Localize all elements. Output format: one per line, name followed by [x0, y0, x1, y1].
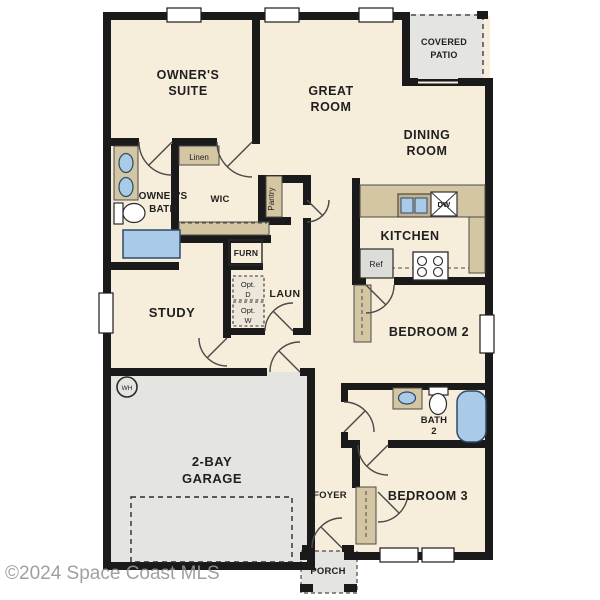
bedroom2-label: BEDROOM 2 — [389, 325, 469, 339]
wall — [293, 328, 309, 335]
bathtub2 — [457, 391, 486, 442]
dining-room-label-1: DINING — [404, 128, 451, 142]
wall — [458, 78, 485, 86]
floor-plan-image: DW Ref — [0, 0, 600, 600]
wall — [477, 11, 488, 19]
wall — [103, 368, 267, 376]
porch-post — [300, 584, 313, 592]
window — [422, 548, 454, 562]
refrigerator-label: Ref — [369, 259, 383, 269]
dishwasher: DW — [431, 192, 457, 216]
dishwasher-label: DW — [438, 200, 452, 209]
kitchen-sink-basin — [415, 198, 427, 213]
slider-panel — [416, 79, 458, 82]
bathtub — [123, 230, 180, 258]
study-label: STUDY — [149, 305, 196, 320]
owners-bath-label-1: OWNER'S — [139, 191, 188, 202]
porch-label: PORCH — [310, 566, 345, 577]
bath2-sink — [399, 392, 416, 404]
wall — [348, 552, 493, 560]
wall — [402, 78, 418, 86]
laundry-label: LAUN — [269, 288, 300, 300]
wic-shelf — [179, 222, 269, 235]
toilet-bowl — [123, 204, 145, 223]
wall — [103, 138, 139, 146]
covered-patio-label-2: PATIO — [430, 50, 457, 60]
bath2-label-1: BATH — [421, 415, 447, 426]
porch-post — [300, 552, 313, 560]
furnace-label: FURN — [234, 248, 258, 258]
porch-post — [344, 584, 357, 592]
wall — [307, 368, 315, 562]
stove-box — [413, 252, 448, 280]
wall — [103, 262, 179, 270]
wall — [223, 328, 265, 335]
toilet-bowl — [430, 394, 447, 415]
burner — [434, 257, 443, 266]
wic-label: WIC — [210, 194, 229, 205]
wall — [402, 12, 410, 86]
kitchen-label: KITCHEN — [380, 229, 439, 243]
bath-sink — [119, 178, 133, 197]
refrigerator: Ref — [360, 249, 393, 278]
wall — [252, 12, 260, 144]
window — [99, 293, 113, 333]
covered-patio-label-1: COVERED — [421, 37, 467, 47]
wall — [103, 12, 111, 570]
window — [167, 8, 201, 22]
pantry-label: Pantry — [267, 187, 276, 210]
foyer-label: FOYER — [313, 490, 347, 501]
window — [380, 548, 418, 562]
wall — [303, 218, 311, 335]
mls-watermark: ©2024 Space Coast MLS — [5, 563, 220, 584]
slider-panel — [416, 84, 458, 87]
wall — [342, 545, 354, 552]
wall — [341, 383, 348, 402]
bath2-label-2: 2 — [431, 426, 436, 437]
window — [359, 8, 393, 22]
bath-sink — [119, 154, 133, 173]
toilet-tank — [114, 203, 123, 224]
burner — [418, 257, 427, 266]
opt-washer-label-2: W — [244, 316, 252, 325]
wall — [352, 440, 360, 488]
burner — [418, 268, 427, 277]
opt-dryer-label-2: D — [245, 290, 251, 299]
bedroom3-label: BEDROOM 3 — [388, 489, 468, 503]
window — [265, 8, 299, 22]
owners-suite-label-1: OWNER'S — [157, 68, 220, 82]
owners-suite-label-2: SUITE — [168, 84, 207, 98]
great-room-label-2: ROOM — [311, 100, 352, 114]
window — [480, 315, 494, 353]
floor-plan-svg: DW Ref — [0, 0, 600, 600]
water-heater-label: WH — [122, 385, 133, 392]
covered-patio-floor — [403, 14, 483, 82]
opt-washer-label-1: Opt. — [241, 306, 255, 315]
opt-dryer-label-1: Opt. — [241, 280, 255, 289]
wall — [223, 262, 231, 338]
linen-label: Linen — [189, 153, 209, 162]
garage-label-1: 2-BAY — [192, 454, 232, 469]
garage-label-2: GARAGE — [182, 471, 242, 486]
porch-post — [344, 552, 357, 560]
wall — [171, 235, 271, 243]
range-stove — [413, 252, 448, 280]
owners-bath-label-2: BATH — [149, 204, 177, 215]
kitchen-side-counter — [469, 217, 485, 273]
burner — [434, 268, 443, 277]
great-room-label-1: GREAT — [308, 84, 353, 98]
kitchen-sink-basin — [401, 198, 413, 213]
dining-room-label-2: ROOM — [407, 144, 448, 158]
wall — [352, 178, 360, 277]
